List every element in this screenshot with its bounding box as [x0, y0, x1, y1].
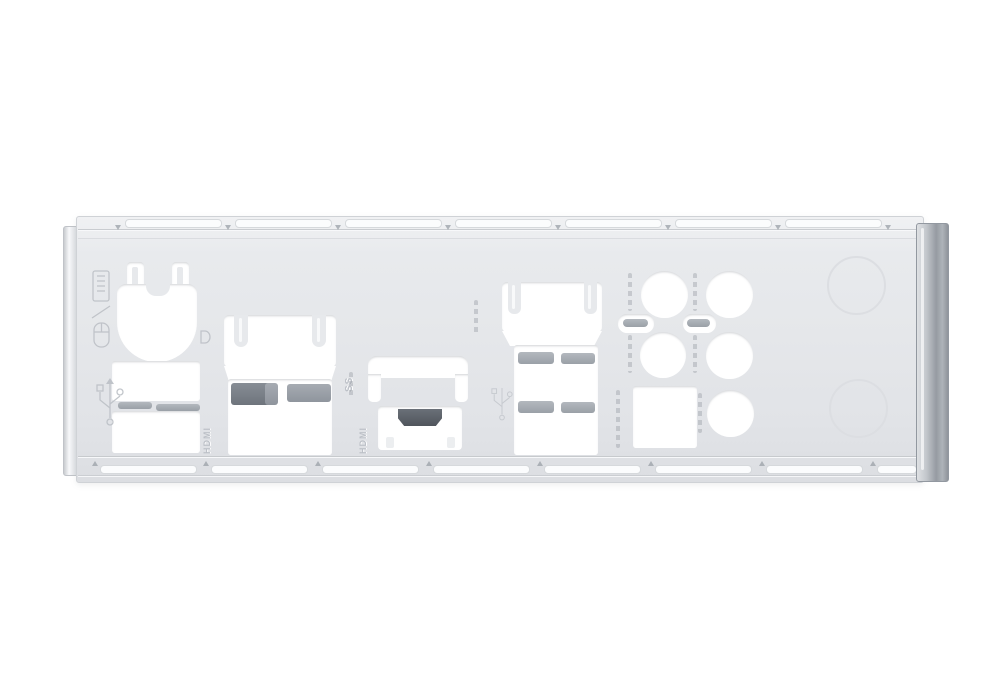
bottom-rim-ridge-2-highlight	[78, 476, 920, 477]
top-rim-slot	[565, 219, 662, 228]
bottom-rim-slot	[655, 465, 752, 474]
hdmi-embossed-label-2: HDMI	[358, 406, 368, 454]
dvi-tongue-slit	[317, 318, 320, 342]
audio-jack-emboss-marks	[693, 335, 697, 373]
bottom-rim-slot	[544, 465, 641, 474]
bottom-rim-slot	[877, 465, 917, 474]
hdmi-embossed-label: HDMI	[202, 404, 212, 454]
audio-jack-emboss-marks	[628, 273, 632, 311]
audio-jack-cutout-3	[640, 332, 686, 378]
bottom-rim-slot	[211, 465, 308, 474]
audio-grounding-tab	[623, 319, 648, 327]
spdif-emboss-marks	[616, 390, 620, 448]
top-rim-slot	[125, 219, 222, 228]
dvi-cutout-shoulder	[224, 366, 336, 380]
top-rim-ridge-highlight	[78, 230, 920, 231]
top-rim-slot	[785, 219, 882, 228]
product-photo-io-shield: HDMI SS HDMI	[0, 0, 1000, 700]
audio-jack-cutout-1	[641, 271, 688, 318]
dvi-tongue-slit	[239, 318, 242, 342]
grounding-tab	[561, 353, 595, 364]
audio-jack-cutout-5	[707, 390, 754, 437]
usb-icon-2	[488, 380, 516, 424]
ring-emboss-icon	[197, 329, 211, 345]
grounding-tab	[518, 352, 554, 364]
lan-tongue-slit	[588, 285, 591, 309]
bottom-rim-ridge-highlight	[78, 457, 920, 458]
grounding-tab	[561, 402, 595, 413]
audio-jack-emboss-marks	[628, 335, 632, 373]
lan-cutout-shoulder	[502, 331, 602, 346]
display-cutout-leg-right	[455, 374, 468, 402]
hdmi-cutout-slit	[447, 437, 455, 448]
spdif-port-cutout	[633, 386, 697, 448]
top-rim-slot	[345, 219, 442, 228]
usb-icon	[92, 376, 128, 428]
top-rim-slot	[235, 219, 332, 228]
flange-highlight	[921, 228, 924, 470]
top-rim-ridge-2	[78, 238, 920, 239]
usb2-divider-slot	[156, 404, 200, 411]
bottom-rim-slot	[100, 465, 197, 474]
grounding-tab	[518, 401, 554, 413]
display-cutout-bar	[368, 356, 468, 378]
audio-jack-emboss-marks	[698, 393, 702, 433]
bottom-rim-slot	[766, 465, 863, 474]
grounding-tab	[287, 384, 331, 402]
knockout-circle-bottom	[829, 379, 888, 438]
audio-jack-cutout-4	[706, 332, 753, 379]
audio-jack-emboss-marks	[693, 273, 697, 311]
hdmi-port-hole	[398, 409, 442, 426]
top-rim-slot	[675, 219, 772, 228]
usb3-emboss-marks	[349, 372, 353, 398]
grounding-tab-edge	[265, 383, 278, 405]
audio-jack-cutout-2	[706, 271, 753, 318]
lan-emboss-marks	[474, 300, 478, 334]
right-fold-flange	[916, 223, 949, 482]
keyboard-mouse-icon	[86, 268, 116, 356]
hdmi-cutout-slit	[386, 437, 394, 448]
display-cutout-leg-left	[368, 374, 381, 402]
bottom-rim-slot	[322, 465, 419, 474]
knockout-circle-top	[827, 256, 886, 315]
top-rim-slot	[455, 219, 552, 228]
audio-grounding-tab	[687, 319, 710, 327]
lan-tongue-slit	[512, 285, 515, 309]
bottom-rim-slot	[433, 465, 530, 474]
